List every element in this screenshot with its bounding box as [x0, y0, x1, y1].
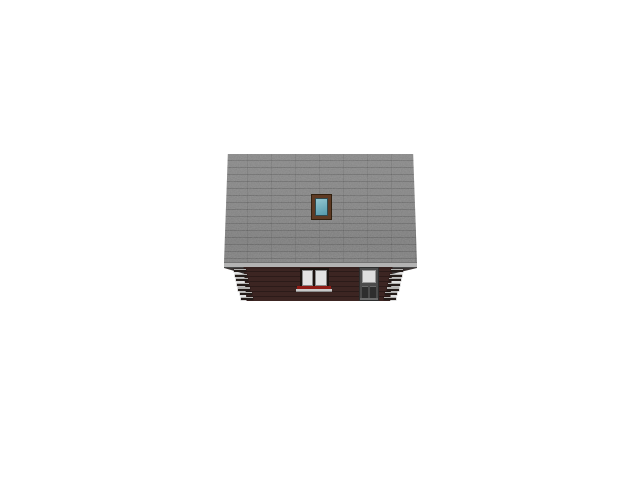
- log-end: [384, 297, 396, 300]
- window-pane-left: [302, 270, 313, 286]
- door-panel-right: [370, 286, 376, 298]
- corner-log-ends-right: [388, 269, 403, 302]
- log-end: [241, 297, 253, 300]
- door-glass: [362, 270, 376, 283]
- door-panel-left: [362, 286, 368, 298]
- log-end: [235, 274, 247, 277]
- log-end: [386, 292, 398, 295]
- log-end: [388, 283, 400, 286]
- log-end: [387, 287, 399, 290]
- roof-window: [311, 194, 332, 220]
- log-end: [238, 287, 250, 290]
- log-end: [240, 292, 252, 295]
- log-end: [390, 274, 402, 277]
- house-elevation-render: [0, 0, 640, 480]
- window-sill-base: [296, 289, 332, 292]
- entrance-door: [359, 267, 379, 301]
- log-end: [234, 269, 246, 272]
- roof-window-glass: [315, 198, 328, 216]
- corner-log-ends-left: [234, 269, 249, 302]
- door-threshold: [360, 298, 378, 300]
- window-pane-right: [315, 270, 327, 286]
- log-end: [391, 269, 403, 272]
- log-end: [237, 283, 249, 286]
- log-end: [236, 278, 248, 281]
- log-end: [389, 278, 401, 281]
